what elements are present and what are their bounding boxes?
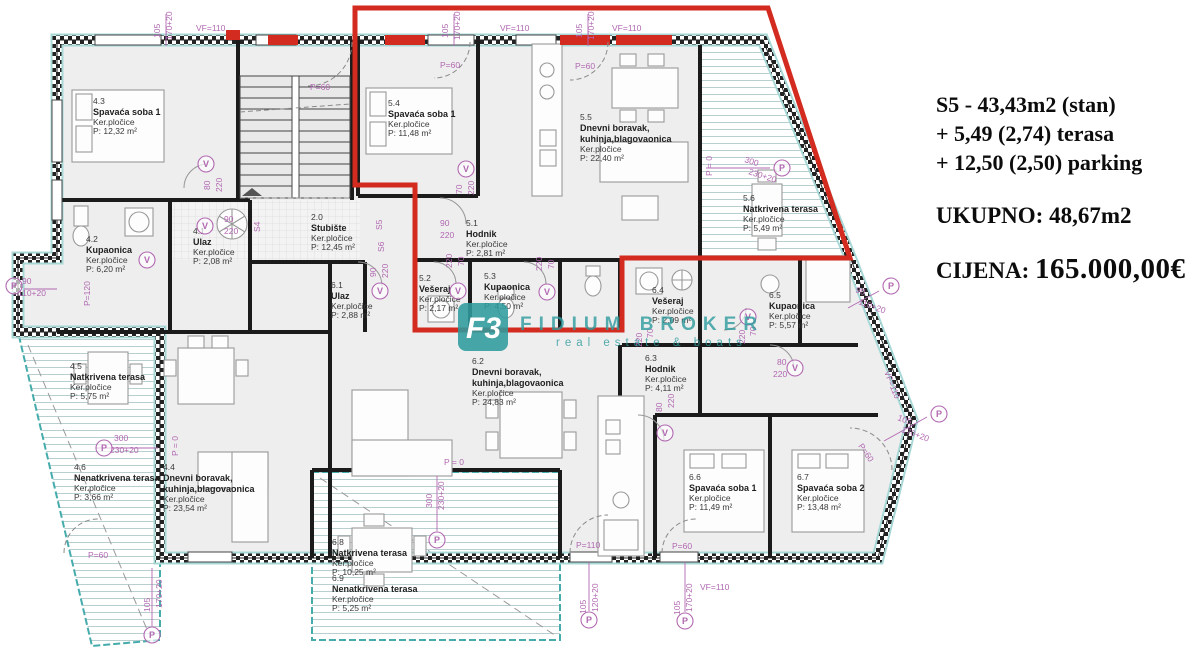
listing-panel: S5 - 43,43m2 (stan) + 5,49 (2,74) terasa… [936,90,1196,286]
svg-text:P: 24,83 m²: P: 24,83 m² [472,397,516,407]
p-marker: P [429,532,445,548]
vent-marker: V [450,283,466,299]
svg-text:Vešeraj: Vešeraj [652,296,684,306]
dim-label: 90 [224,214,234,224]
svg-text:6.6: 6.6 [689,472,701,482]
dim-label: 105 [574,24,584,38]
dim-label: 105 [440,24,450,38]
svg-text:Hodnik: Hodnik [645,364,676,374]
dim-label: 105 [152,24,162,38]
svg-text:V: V [455,286,461,296]
svg-text:5.2: 5.2 [419,273,431,283]
svg-text:Spavaća soba 1: Spavaća soba 1 [388,109,456,119]
brand-logo-text: F3 [466,312,501,345]
dim-label: 90 [368,267,378,277]
svg-text:P: 2,81 m²: P: 2,81 m² [466,248,505,258]
svg-text:P: 2,17 m²: P: 2,17 m² [419,303,458,313]
svg-text:V: V [544,287,550,297]
vent-marker: V [787,360,803,376]
svg-text:Spavaća soba 1: Spavaća soba 1 [93,107,161,117]
svg-text:V: V [792,363,798,373]
svg-text:P: 11,48 m²: P: 11,48 m² [388,128,431,138]
dining-table [178,348,234,404]
svg-text:P: 2,88 m²: P: 2,88 m² [331,310,370,320]
svg-text:P: 5,25 m²: P: 5,25 m² [332,603,371,613]
dim-label: 170+20 [164,11,174,40]
price-line: CIJENA: 165.000,00€ [936,253,1196,286]
svg-text:Spavaća soba 2: Spavaća soba 2 [797,483,865,493]
vent-marker: V [657,425,673,441]
dim-label: 230+20 [436,481,446,510]
svg-text:6.7: 6.7 [797,472,809,482]
svg-text:6.2: 6.2 [472,356,484,366]
svg-text:P: P [888,281,894,291]
svg-text:P: 23,54 m²: P: 23,54 m² [163,503,207,513]
dim-label: S5 [374,219,384,230]
svg-text:5.6: 5.6 [743,193,755,203]
svg-text:P: 12,45 m²: P: 12,45 m² [311,242,355,252]
svg-text:Dnevni boravak,: Dnevni boravak, [163,473,233,483]
dim-label: P=60 [672,541,692,551]
svg-text:P: P [586,615,592,625]
p-marker: P [677,613,693,629]
svg-text:6.9: 6.9 [332,573,344,583]
svg-text:Ulaz: Ulaz [193,237,212,247]
p-marker: P [144,627,160,643]
svg-text:5.3: 5.3 [484,271,496,281]
svg-text:P: P [779,163,785,173]
vent-marker: V [539,284,555,300]
svg-text:kuhinja,blagovaonica: kuhinja,blagovaonica [472,378,565,388]
dim-label: 170+20 [684,583,694,612]
dim-label: VF=110 [196,23,226,33]
dim-label: P=60 [575,61,595,71]
p-marker: P [931,406,947,422]
dim-label: 220 [666,394,676,408]
svg-text:kuhinja,blagovaonica: kuhinja,blagovaonica [163,484,256,494]
svg-text:4.3: 4.3 [93,96,105,106]
svg-text:P: 6,20 m²: P: 6,20 m² [86,264,125,274]
dim-label: P = 0 [170,436,180,456]
dim-label: 170+20 [586,11,596,40]
price-label: CIJENA: [936,258,1029,283]
svg-text:Dnevni boravak,: Dnevni boravak, [580,123,650,133]
vent-marker: V [458,161,474,177]
svg-text:V: V [202,221,208,231]
dim-label: P = 0 [704,156,714,176]
svg-text:Spavaća soba 1: Spavaća soba 1 [689,483,757,493]
svg-text:6.3: 6.3 [645,353,657,363]
dim-label: 220 [444,254,454,268]
dim-label: S4 [252,221,262,232]
svg-text:P: P [101,443,107,453]
brand-name: FIDIUM BROKER [520,314,764,335]
dim-label: 220 [440,230,454,240]
parking-line: + 12,50 (2,50) parking [936,148,1196,177]
svg-text:P: 2,08 m²: P: 2,08 m² [193,256,232,266]
vent-marker: V [197,218,213,234]
p-marker: P [6,278,22,294]
dim-label: P = 0 [444,457,464,467]
p-marker: P [774,160,790,176]
svg-text:4.4: 4.4 [163,462,175,472]
svg-text:Nenatkrivena terasa: Nenatkrivena terasa [74,473,161,483]
svg-text:Vešeraj: Vešeraj [419,284,451,294]
svg-text:5.5: 5.5 [580,112,592,122]
total-line: UKUPNO: 48,67m2 [936,203,1196,229]
svg-text:P: 11,49 m²: P: 11,49 m² [689,502,732,512]
vent-marker: V [198,156,214,172]
dim-label: P=60 [440,60,460,70]
dim-label: 220 [534,257,544,271]
dim-label: 170+20 [154,579,164,608]
vent-marker: V [372,283,388,299]
dim-label: P=60 [88,550,108,560]
svg-text:P: P [682,616,688,626]
dim-label: 70 [456,256,466,266]
dim-label: 220 [224,226,238,236]
terrace-line: + 5,49 (2,74) terasa [936,119,1196,148]
svg-text:P: 4,11 m²: P: 4,11 m² [645,383,684,393]
bathtub [806,260,850,302]
p-marker: P [96,440,112,456]
svg-text:Kupaonica: Kupaonica [86,245,133,255]
svg-text:Dnevni boravak,: Dnevni boravak, [472,367,542,377]
floor-plan-page: 4.3Spavaća soba 1 Ker.pločiceP: 12,32 m²… [0,0,1200,649]
svg-text:Kupaonica: Kupaonica [484,282,531,292]
svg-text:Ulaz: Ulaz [331,291,350,301]
stairs [240,76,352,198]
dim-label: 105 [142,598,152,612]
dim-label: 220 [380,264,390,278]
brand-tagline: real estate & boats [556,337,747,349]
dim-label: 300 [424,494,434,508]
dim-label: 90 [22,276,32,286]
dim-label: VF=110 [700,582,730,592]
svg-text:P: P [149,630,155,640]
svg-text:Natkrivena terasa: Natkrivena terasa [70,372,146,382]
svg-text:P: 12,32 m²: P: 12,32 m² [93,126,137,136]
dim-label: 110+20 [18,288,46,298]
svg-text:6.1: 6.1 [331,280,343,290]
dim-label: 220 [773,369,787,379]
svg-text:Kupaonica: Kupaonica [769,301,816,311]
svg-text:V: V [144,255,150,265]
vent-marker: V [139,252,155,268]
svg-text:5.4: 5.4 [388,98,400,108]
unit-area-line: S5 - 43,43m2 (stan) [936,90,1196,119]
svg-text:Stubište: Stubište [311,223,347,233]
dim-label: 120+20 [590,583,600,612]
svg-text:Natkrivena terasa: Natkrivena terasa [332,548,408,558]
svg-text:P: 5,75 m²: P: 5,75 m² [70,391,109,401]
dim-label: VF=110 [612,23,642,33]
svg-text:Hodnik: Hodnik [466,229,497,239]
svg-text:Natkrivena terasa: Natkrivena terasa [743,204,819,214]
svg-text:4.6: 4.6 [74,462,86,472]
dim-label: 70 [454,184,464,194]
svg-text:V: V [662,428,668,438]
svg-text:6.5: 6.5 [769,290,781,300]
svg-text:P: 5,49 m²: P: 5,49 m² [743,223,782,233]
svg-text:V: V [463,164,469,174]
dim-label: 300 [114,433,128,443]
dim-label: P=60 [310,82,330,92]
svg-text:V: V [377,286,383,296]
svg-text:P: 3,66 m²: P: 3,66 m² [74,492,113,502]
dim-label: 220 [214,178,224,192]
price-value: 165.000,00€ [1035,253,1186,285]
svg-text:5.1: 5.1 [466,218,478,228]
svg-text:P: P [11,281,17,291]
dim-label: 230+20 [110,445,139,455]
dim-label: 105 [672,601,682,615]
svg-text:6.4: 6.4 [652,285,664,295]
svg-text:kuhinja,blagovaonica: kuhinja,blagovaonica [580,134,673,144]
svg-text:2.0: 2.0 [311,212,323,222]
dim-label: S6 [376,241,386,252]
dim-label: P=110 [576,540,600,550]
dim-label: 70 [546,259,556,269]
p-marker: P [581,612,597,628]
svg-text:P: 13,48 m²: P: 13,48 m² [797,502,841,512]
dim-label: 80 [202,180,212,190]
svg-text:P: 5,57 m²: P: 5,57 m² [769,320,808,330]
svg-text:P: P [936,409,942,419]
dim-label: 220 [466,181,476,195]
svg-text:P: P [434,535,440,545]
dim-label: 170+20 [452,11,462,40]
dining-table [612,68,678,108]
svg-text:6.8: 6.8 [332,537,344,547]
svg-text:V: V [203,159,209,169]
dim-label: 90 [440,218,450,228]
dim-label: P=120 [82,281,92,306]
svg-text:4.5: 4.5 [70,361,82,371]
svg-text:P: 22,40 m²: P: 22,40 m² [580,153,624,163]
dim-label: 80 [777,357,787,367]
dim-label: 80 [654,402,664,412]
dim-label: VF=110 [500,23,530,33]
svg-text:Nenatkrivena terasa: Nenatkrivena terasa [332,584,419,594]
svg-text:4.2: 4.2 [86,234,98,244]
p-marker: P [883,278,899,294]
